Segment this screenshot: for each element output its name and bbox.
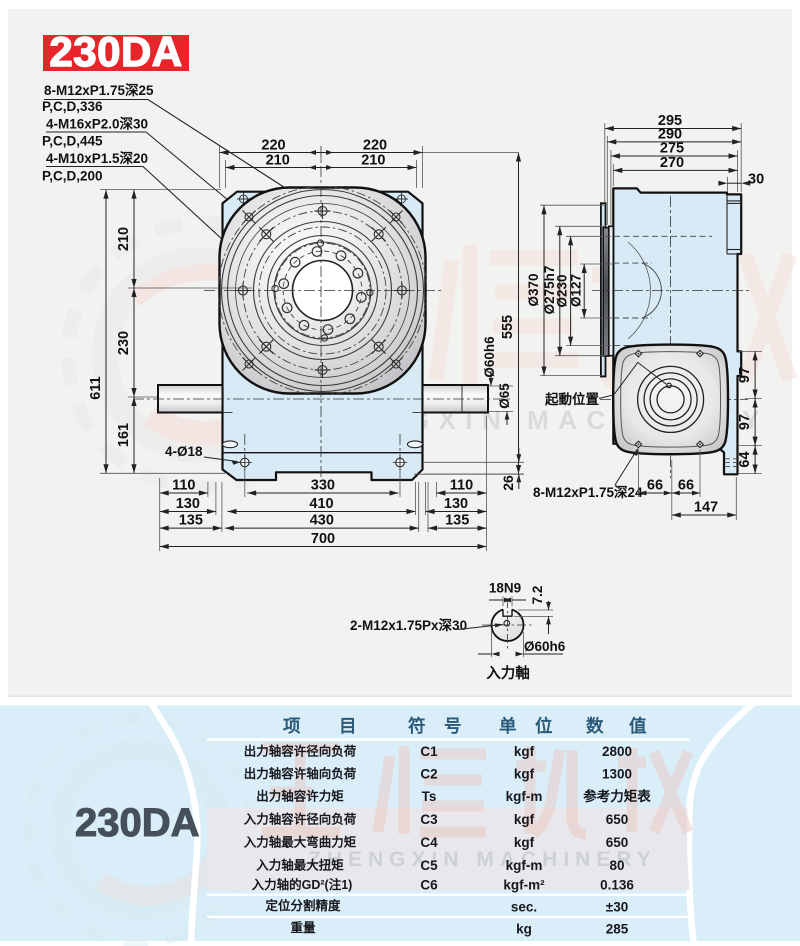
svg-text:135: 135 bbox=[445, 513, 469, 529]
svg-text:Ø127: Ø127 bbox=[569, 274, 584, 307]
svg-text:80: 80 bbox=[609, 858, 624, 873]
svg-text:sec.: sec. bbox=[511, 900, 537, 915]
svg-text:Ø370: Ø370 bbox=[526, 273, 541, 306]
svg-text:285: 285 bbox=[606, 922, 629, 937]
svg-text:130: 130 bbox=[444, 496, 468, 512]
svg-text:66: 66 bbox=[678, 478, 694, 494]
svg-text:110: 110 bbox=[450, 478, 473, 494]
svg-text:220: 220 bbox=[363, 138, 387, 154]
svg-text:66: 66 bbox=[647, 478, 663, 494]
svg-text:出力轴容许径向负荷: 出力轴容许径向负荷 bbox=[244, 744, 357, 759]
svg-text:C3: C3 bbox=[420, 812, 438, 827]
svg-text:kgf: kgf bbox=[514, 835, 535, 850]
svg-text:入力轴容许径向负荷: 入力轴容许径向负荷 bbox=[244, 812, 357, 827]
svg-text:4-Ø18: 4-Ø18 bbox=[165, 444, 203, 459]
svg-text:650: 650 bbox=[606, 835, 629, 850]
svg-text:611: 611 bbox=[88, 376, 104, 399]
svg-text:kgf-m²: kgf-m² bbox=[503, 878, 545, 893]
svg-text:入力轴最大扭矩: 入力轴最大扭矩 bbox=[256, 858, 344, 873]
svg-text:入力轴最大弯曲力矩: 入力轴最大弯曲力矩 bbox=[244, 835, 357, 850]
svg-text:64: 64 bbox=[737, 451, 753, 467]
svg-text:kgf-m: kgf-m bbox=[506, 858, 543, 873]
svg-text:1300: 1300 bbox=[602, 767, 632, 782]
svg-text:210: 210 bbox=[116, 227, 132, 251]
svg-text:kgf: kgf bbox=[514, 812, 535, 827]
svg-text:230DA: 230DA bbox=[75, 801, 200, 845]
svg-text:26: 26 bbox=[500, 475, 516, 491]
svg-text:7.2: 7.2 bbox=[530, 586, 545, 605]
svg-text:30: 30 bbox=[748, 172, 764, 188]
svg-text:410: 410 bbox=[309, 496, 333, 512]
svg-text:入力轴的GD²(注1): 入力轴的GD²(注1) bbox=[252, 877, 353, 892]
svg-text:270: 270 bbox=[660, 155, 684, 171]
svg-text:C5: C5 bbox=[420, 858, 438, 873]
svg-text:Ø60h6: Ø60h6 bbox=[524, 639, 566, 654]
svg-text:C1: C1 bbox=[420, 744, 438, 759]
svg-text:P,C,D,336: P,C,D,336 bbox=[42, 99, 103, 114]
svg-text:P,C,D,445: P,C,D,445 bbox=[42, 134, 103, 149]
svg-text:4-M16xP2.0深30: 4-M16xP2.0深30 bbox=[46, 116, 148, 132]
svg-text:161: 161 bbox=[116, 423, 132, 447]
svg-text:97: 97 bbox=[737, 367, 753, 383]
svg-text:C6: C6 bbox=[420, 878, 438, 893]
svg-text:220: 220 bbox=[261, 138, 285, 154]
svg-text:kg: kg bbox=[516, 922, 532, 937]
svg-text:2800: 2800 bbox=[602, 744, 632, 759]
svg-text:130: 130 bbox=[176, 496, 200, 512]
svg-text:P,C,D,200: P,C,D,200 bbox=[42, 169, 103, 184]
svg-text:210: 210 bbox=[266, 153, 290, 169]
svg-text:Ø65: Ø65 bbox=[497, 383, 512, 409]
svg-text:210: 210 bbox=[361, 153, 385, 169]
svg-text:入力軸: 入力軸 bbox=[486, 664, 530, 682]
svg-text:出力轴容许轴向负荷: 出力轴容许轴向负荷 bbox=[244, 766, 357, 781]
svg-text:Ts: Ts bbox=[422, 789, 437, 804]
svg-text:147: 147 bbox=[694, 500, 718, 516]
svg-text:330: 330 bbox=[311, 478, 335, 494]
svg-text:C4: C4 bbox=[420, 835, 438, 850]
svg-text:97: 97 bbox=[737, 414, 753, 430]
svg-text:ZHENGXIN MACHINERY: ZHENGXIN MACHINERY bbox=[308, 848, 657, 871]
svg-text:650: 650 bbox=[606, 812, 629, 827]
svg-text:kgf: kgf bbox=[514, 767, 535, 782]
svg-text:8-M12xP1.75深25: 8-M12xP1.75深25 bbox=[44, 82, 154, 98]
svg-text:±30: ±30 bbox=[606, 900, 628, 915]
svg-text:kgf-m: kgf-m bbox=[506, 789, 543, 804]
svg-text:230: 230 bbox=[116, 331, 132, 355]
svg-text:4-M10xP1.5深20: 4-M10xP1.5深20 bbox=[46, 150, 148, 166]
svg-text:kgf: kgf bbox=[514, 744, 535, 759]
svg-text:110: 110 bbox=[172, 478, 195, 494]
svg-text:135: 135 bbox=[179, 513, 203, 529]
svg-text:起動位置: 起動位置 bbox=[544, 391, 599, 407]
svg-text:430: 430 bbox=[310, 513, 334, 529]
svg-text:参考力矩表: 参考力矩表 bbox=[583, 788, 651, 804]
svg-text:C2: C2 bbox=[420, 767, 437, 782]
svg-text:0.136: 0.136 bbox=[600, 878, 634, 893]
svg-text:Ø60h6: Ø60h6 bbox=[482, 336, 497, 378]
svg-text:定位分割精度: 定位分割精度 bbox=[264, 898, 341, 913]
svg-text:重量: 重量 bbox=[290, 920, 316, 935]
svg-text:555: 555 bbox=[500, 315, 516, 339]
svg-text:230DA: 230DA bbox=[49, 28, 182, 75]
svg-text:700: 700 bbox=[311, 531, 335, 547]
svg-text:8-M12xP1.75深24: 8-M12xP1.75深24 bbox=[533, 484, 643, 500]
svg-text:18N9: 18N9 bbox=[489, 581, 521, 596]
svg-text:Ø230: Ø230 bbox=[555, 274, 570, 307]
svg-text:出力轴容许力矩: 出力轴容许力矩 bbox=[256, 789, 344, 804]
svg-text:2-M12x1.75Px深30: 2-M12x1.75Px深30 bbox=[350, 617, 467, 633]
